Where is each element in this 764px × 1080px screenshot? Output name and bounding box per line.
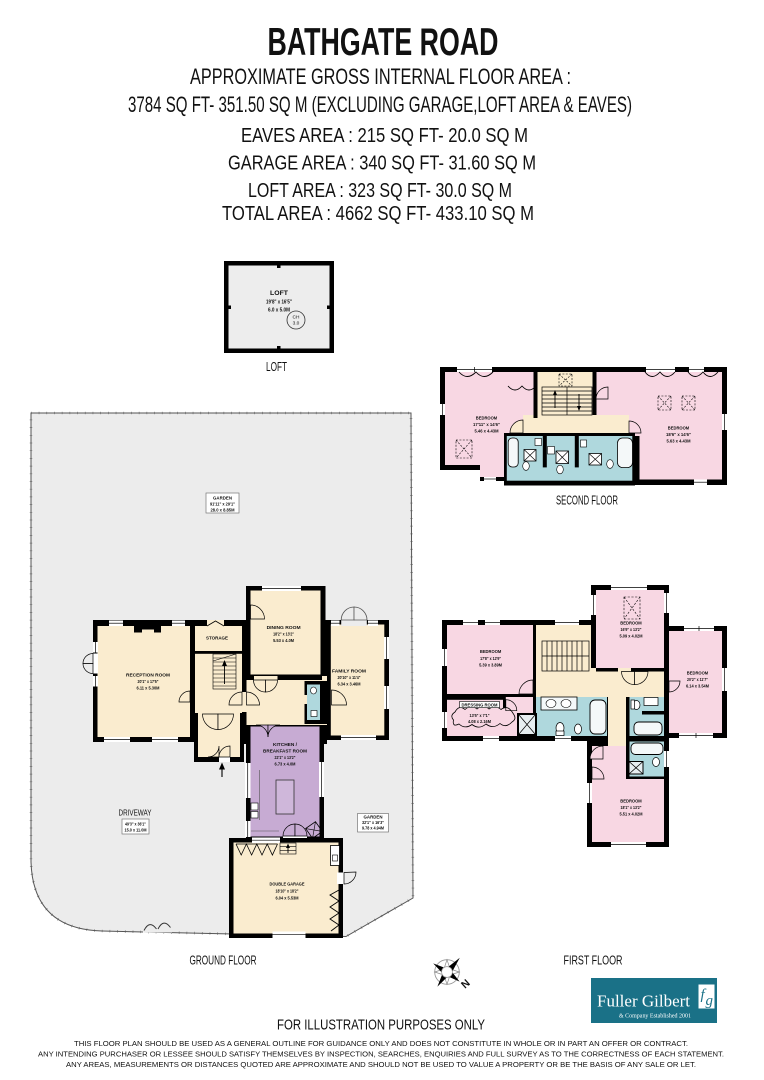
svg-text:18'1" x 13'2": 18'1" x 13'2" bbox=[621, 805, 642, 810]
svg-text:BATHGATE ROAD: BATHGATE ROAD bbox=[268, 21, 499, 64]
svg-text:DOUBLE GARAGE: DOUBLE GARAGE bbox=[270, 882, 306, 888]
svg-text:TOTAL AREA : 4662 SQ FT- 433.: TOTAL AREA : 4662 SQ FT- 433.10 SQ M bbox=[222, 203, 534, 225]
svg-text:5.46 x 4.43M: 5.46 x 4.43M bbox=[475, 428, 499, 433]
svg-text:6.0 x 5.0M: 6.0 x 5.0M bbox=[268, 308, 290, 314]
svg-text:N: N bbox=[459, 977, 473, 991]
svg-text:LOFT AREA : 323 SQ FT- 30.0 S: LOFT AREA : 323 SQ FT- 30.0 SQ M bbox=[248, 180, 512, 202]
svg-text:18'10" x 18'2": 18'10" x 18'2" bbox=[276, 889, 299, 894]
svg-text:22'1" x 13'2": 22'1" x 13'2" bbox=[275, 755, 296, 760]
svg-text:LOFT: LOFT bbox=[266, 360, 287, 374]
svg-text:17'11" x 14'6": 17'11" x 14'6" bbox=[473, 422, 500, 427]
svg-text:13'5" x 7'1": 13'5" x 7'1" bbox=[470, 713, 490, 718]
svg-text:15.0 x 11.0M: 15.0 x 11.0M bbox=[125, 828, 147, 833]
svg-text:6.34 x 3.46M: 6.34 x 3.46M bbox=[338, 682, 361, 687]
svg-text:49'3" x 36'1": 49'3" x 36'1" bbox=[125, 822, 146, 827]
svg-text:FIRST FLOOR: FIRST FLOOR bbox=[564, 954, 623, 968]
svg-text:DRESSING ROOM: DRESSING ROOM bbox=[462, 702, 498, 707]
svg-text:4.08 x 2.16M: 4.08 x 2.16M bbox=[468, 719, 491, 724]
svg-text:20'1" x 17'5": 20'1" x 17'5" bbox=[138, 679, 159, 684]
svg-text:RECEPTION ROOM: RECEPTION ROOM bbox=[126, 673, 170, 679]
svg-text:FOR ILLUSTRATION PURPOSES ONLY: FOR ILLUSTRATION PURPOSES ONLY bbox=[277, 1018, 485, 1034]
svg-text:28.0 x 8.85M: 28.0 x 8.85M bbox=[211, 508, 235, 513]
svg-text:STORAGE: STORAGE bbox=[206, 636, 229, 642]
svg-text:18'6" x 14'6": 18'6" x 14'6" bbox=[666, 432, 691, 437]
svg-text:KITCHEN /: KITCHEN / bbox=[273, 742, 298, 748]
svg-text:BEDROOM: BEDROOM bbox=[668, 426, 690, 432]
svg-text:6.73 x 4.0M: 6.73 x 4.0M bbox=[275, 762, 296, 767]
svg-text:APPROXIMATE GROSS INTERNAL FLO: APPROXIMATE GROSS INTERNAL FLOOR AREA : bbox=[190, 64, 571, 89]
svg-text:& Company Established 2001: & Company Established 2001 bbox=[619, 1013, 691, 1020]
svg-text:g: g bbox=[706, 993, 714, 1009]
svg-text:BEDROOM: BEDROOM bbox=[620, 621, 642, 627]
svg-text:6.14 x 3.54M: 6.14 x 3.54M bbox=[686, 684, 709, 689]
svg-text:EAVES AREA : 215 SQ FT- 20.0: EAVES AREA : 215 SQ FT- 20.0 SQ M bbox=[241, 125, 528, 147]
svg-text:DRIVEWAY: DRIVEWAY bbox=[119, 809, 153, 818]
svg-text:LOFT: LOFT bbox=[270, 291, 288, 297]
svg-text:6.04 x 5.53M: 6.04 x 5.53M bbox=[276, 896, 299, 901]
svg-text:BEDROOM: BEDROOM bbox=[480, 649, 502, 655]
svg-text:BEDROOM: BEDROOM bbox=[476, 416, 498, 422]
svg-text:ANY AREAS, MEASUREMENTS OR DIS: ANY AREAS, MEASUREMENTS OR DISTANCES QUO… bbox=[66, 1060, 696, 1069]
svg-text:ANY INTENDING PURCHASER OR LES: ANY INTENDING PURCHASER OR LESSEE SHOULD… bbox=[38, 1050, 724, 1059]
svg-text:32'1" x 16'3": 32'1" x 16'3" bbox=[362, 820, 384, 825]
svg-text:16'9" x 13'2": 16'9" x 13'2" bbox=[621, 627, 642, 632]
svg-text:5.09 x 4.02M: 5.09 x 4.02M bbox=[620, 634, 643, 639]
svg-text:5.63 x 4.43M: 5.63 x 4.43M bbox=[667, 439, 691, 444]
svg-text:18'2" x 13'2": 18'2" x 13'2" bbox=[273, 632, 294, 637]
svg-text:20'2" x 11'7": 20'2" x 11'7" bbox=[687, 677, 708, 682]
svg-text:SECOND FLOOR: SECOND FLOOR bbox=[556, 494, 618, 508]
svg-text:THIS FLOOR PLAN SHOULD BE USED: THIS FLOOR PLAN SHOULD BE USED AS A GENE… bbox=[74, 1039, 688, 1048]
svg-text:6.11 x 5.30M: 6.11 x 5.30M bbox=[137, 686, 160, 691]
svg-text:20'10" x 11'4": 20'10" x 11'4" bbox=[338, 675, 361, 680]
svg-text:CH: CH bbox=[293, 315, 300, 321]
svg-text:19'8" x 16'5": 19'8" x 16'5" bbox=[266, 300, 293, 306]
svg-text:FAMILY ROOM: FAMILY ROOM bbox=[332, 669, 366, 675]
svg-text:91'11" x 29'1": 91'11" x 29'1" bbox=[210, 502, 235, 507]
svg-text:3784 SQ FT- 351.50 SQ M (EXCL: 3784 SQ FT- 351.50 SQ M (EXCLUDING GARAG… bbox=[128, 92, 632, 117]
svg-text:Fuller Gilbert: Fuller Gilbert bbox=[597, 992, 690, 1011]
svg-text:5.53 x 4.0M: 5.53 x 4.0M bbox=[273, 638, 294, 643]
svg-text:GROUND FLOOR: GROUND FLOOR bbox=[190, 954, 257, 968]
svg-text:BEDROOM: BEDROOM bbox=[687, 671, 709, 677]
svg-text:3.0: 3.0 bbox=[293, 321, 300, 327]
svg-text:BREAKFAST ROOM: BREAKFAST ROOM bbox=[263, 749, 307, 755]
svg-text:DINING ROOM: DINING ROOM bbox=[267, 625, 301, 631]
svg-text:9.78 x 4.94M: 9.78 x 4.94M bbox=[362, 826, 384, 831]
svg-text:BEDROOM: BEDROOM bbox=[620, 799, 642, 805]
svg-text:5.39 x 3.89M: 5.39 x 3.89M bbox=[479, 662, 502, 667]
svg-text:17'8" x 12'9": 17'8" x 12'9" bbox=[480, 656, 501, 661]
svg-text:GARAGE AREA : 340 SQ FT- 31.6: GARAGE AREA : 340 SQ FT- 31.60 SQ M bbox=[228, 153, 536, 175]
svg-text:5.51 x 4.02M: 5.51 x 4.02M bbox=[620, 812, 643, 817]
